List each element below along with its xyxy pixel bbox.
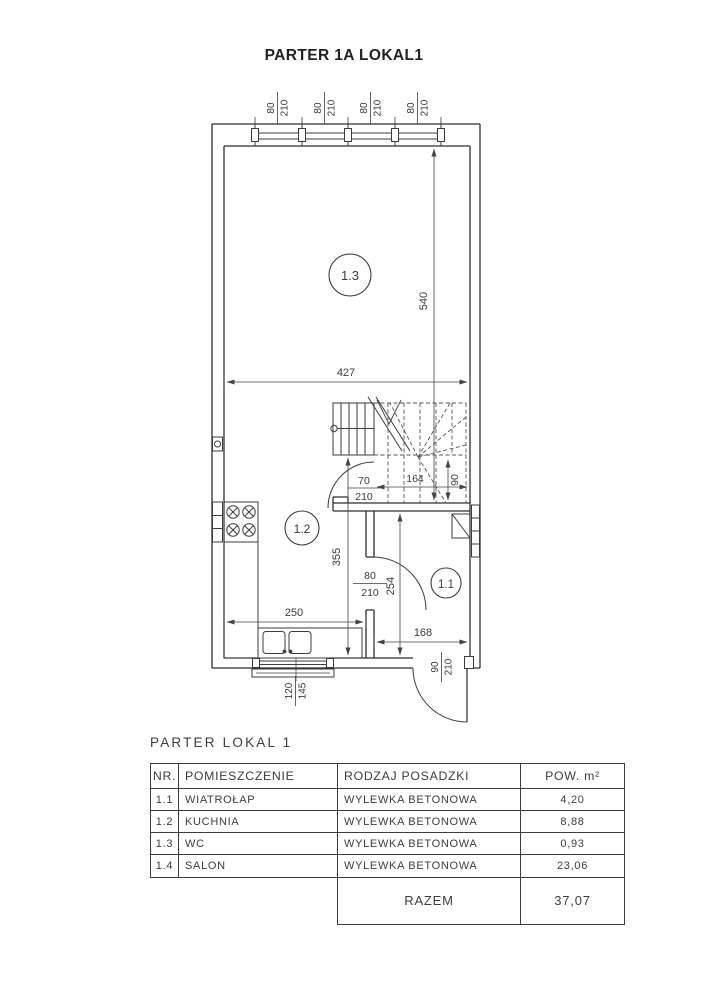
table-cell-area: 0,93 (521, 833, 624, 855)
table-cell-room: KUCHNIA (179, 811, 338, 833)
table-cell-nr: 1.2 (151, 811, 179, 833)
staircase (331, 397, 410, 455)
table-cell-floor: WYLEWKA BETONOWA (338, 789, 521, 811)
table-cell-nr: 1.4 (151, 855, 179, 877)
table-caption: PARTER LOKAL 1 (150, 735, 292, 750)
svg-text:210: 210 (420, 99, 431, 116)
svg-text:145: 145 (298, 682, 309, 699)
kitchen-sink (263, 632, 311, 654)
table-cell-nr: 1.1 (151, 789, 179, 811)
col-header-room: POMIESZCZENIE (179, 764, 338, 789)
bottom-window (252, 658, 334, 681)
col-header-area: POW. m² (521, 764, 624, 789)
total-label: RAZEM (338, 877, 521, 924)
area-table: NR. POMIESZCZENIE RODZAJ POSADZKI POW. m… (150, 763, 625, 878)
door-swings (328, 462, 474, 722)
dim-427: 427 (337, 367, 355, 379)
col-header-floor: RODZAJ POSADZKI (338, 764, 521, 789)
svg-text:80: 80 (364, 570, 376, 582)
svg-text:80: 80 (359, 102, 370, 114)
stove (213, 502, 259, 542)
svg-text:70: 70 (358, 475, 370, 487)
staircase-upper-dashed (374, 403, 466, 503)
svg-text:1.1: 1.1 (438, 579, 454, 591)
total-row: RAZEM 37,07 (337, 877, 625, 925)
table-cell-floor: WYLEWKA BETONOWA (338, 855, 521, 877)
entry-door-label: 90 210 (430, 652, 455, 682)
svg-text:80: 80 (266, 102, 277, 114)
table-cell-area: 4,20 (521, 789, 624, 811)
duct-shaft (452, 514, 470, 538)
svg-text:210: 210 (373, 99, 384, 116)
svg-text:210: 210 (444, 658, 455, 675)
dim-540: 540 (418, 292, 430, 310)
svg-text:210: 210 (327, 99, 338, 116)
interior-door-label: 80 210 (353, 570, 387, 599)
drawing-title: PARTER 1A LOKAL1 (265, 47, 424, 65)
table-cell-area: 8,88 (521, 811, 624, 833)
table-cell-room: WIATROŁAP (179, 789, 338, 811)
dim-164: 164 (406, 473, 424, 485)
table-cell-area: 23,06 (521, 855, 624, 877)
svg-text:120: 120 (284, 682, 295, 699)
table-cell-nr: 1.3 (151, 833, 179, 855)
svg-text:210: 210 (355, 491, 373, 503)
dim-254: 254 (385, 577, 397, 595)
dim-90: 90 (449, 474, 461, 486)
stair-walkline-start (331, 425, 337, 431)
page: PARTER 1A LOKAL1 (0, 0, 707, 999)
window-label: 80 210 (266, 92, 291, 124)
svg-text:210: 210 (361, 587, 379, 599)
kitchen-fixtures (213, 437, 480, 658)
dimension-lines (224, 149, 470, 655)
entry-door-swing (413, 668, 467, 722)
window-label: 80 210 (313, 92, 338, 124)
svg-text:210: 210 (280, 99, 291, 116)
right-wall-window (472, 505, 480, 557)
svg-text:1.2: 1.2 (294, 522, 311, 536)
svg-text:90: 90 (430, 661, 441, 673)
wall-vent (213, 437, 223, 451)
window-label: 80 210 (359, 92, 384, 124)
dim-168: 168 (414, 627, 432, 639)
table-cell-floor: WYLEWKA BETONOWA (338, 833, 521, 855)
table-cell-room: WC (179, 833, 338, 855)
room-tag-1-2: 1.2 (285, 511, 319, 545)
svg-text:80: 80 (313, 102, 324, 114)
room-tags: 1.3 1.2 1.1 (285, 254, 461, 598)
room-tag-1-3: 1.3 (329, 254, 371, 296)
col-header-nr: NR. (151, 764, 179, 789)
window-label: 80 210 (406, 92, 431, 124)
room-tag-1-1: 1.1 (431, 568, 461, 598)
table-cell-floor: WYLEWKA BETONOWA (338, 811, 521, 833)
svg-text:1.3: 1.3 (341, 268, 359, 283)
total-value: 37,07 (521, 877, 624, 924)
top-windows (252, 117, 445, 146)
svg-text:80: 80 (406, 102, 417, 114)
stair-door-label: 70 210 (348, 475, 380, 503)
entry-door-hinge (465, 657, 474, 669)
table-cell-room: SALON (179, 855, 338, 877)
dim-355: 355 (331, 548, 343, 566)
dim-250: 250 (285, 607, 303, 619)
